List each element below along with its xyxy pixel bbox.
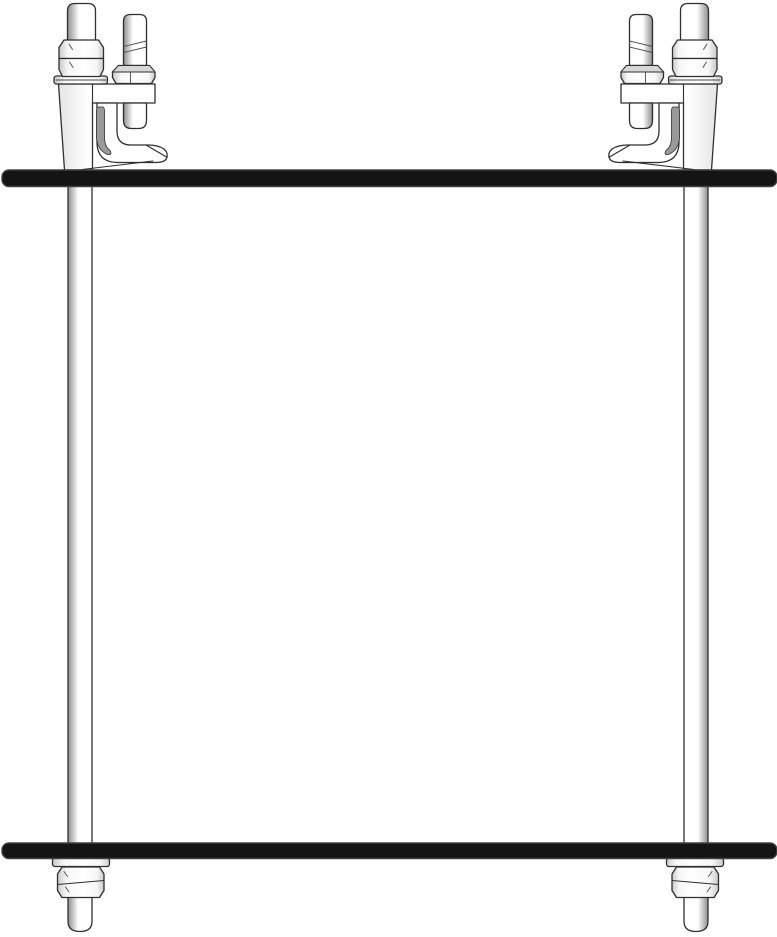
bottom-beam-flange xyxy=(2,843,777,859)
top-beam-flange xyxy=(2,170,777,187)
assembly-drawing xyxy=(0,0,777,937)
